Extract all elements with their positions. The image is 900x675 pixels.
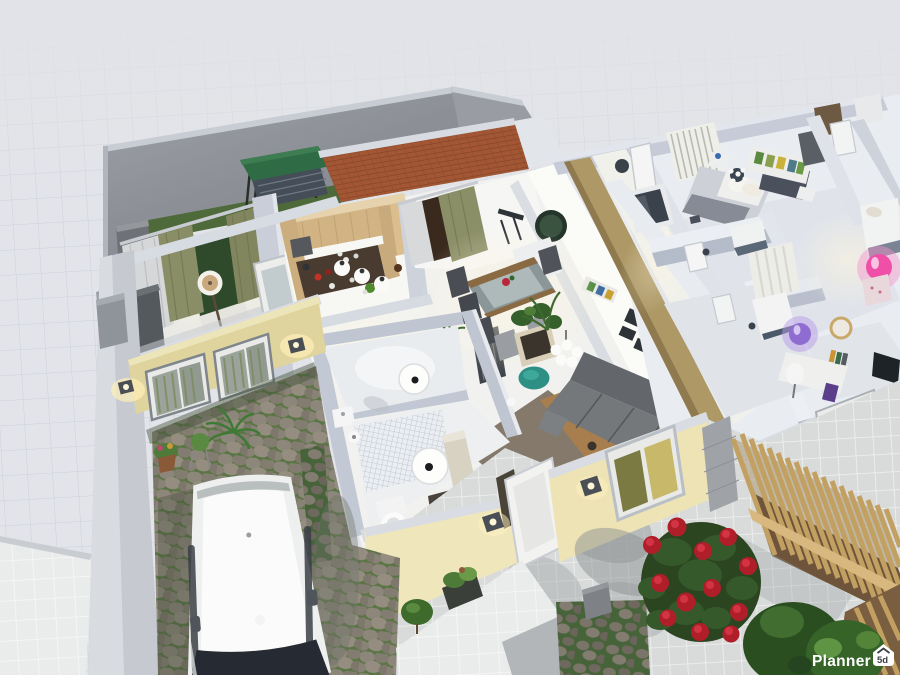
svg-text:Planner: Planner xyxy=(812,653,871,670)
svg-text:5d: 5d xyxy=(877,655,888,666)
